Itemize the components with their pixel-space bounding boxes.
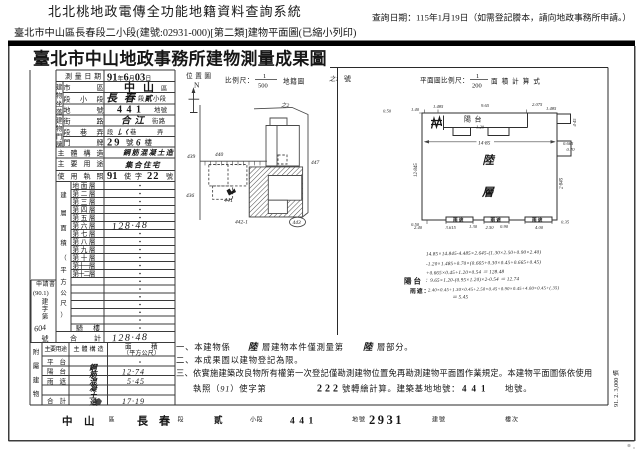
svg-text:陽台: 陽台 bbox=[464, 115, 485, 124]
svg-text:441: 441 bbox=[117, 105, 146, 116]
svg-text:第十二層: 第十二層 bbox=[73, 269, 96, 278]
svg-text:巷: 巷 bbox=[130, 128, 137, 136]
svg-text:北北桃地政電傳全功能地籍資料查詢系統: 北北桃地政電傳全功能地籍資料查詢系統 bbox=[48, 4, 302, 19]
svg-text:建: 建 bbox=[60, 190, 67, 199]
svg-text:段: 段 bbox=[97, 94, 104, 103]
svg-text:第: 第 bbox=[42, 312, 49, 321]
svg-text:之2: 之2 bbox=[281, 102, 290, 109]
svg-text:(90.1): (90.1) bbox=[33, 290, 49, 297]
svg-text:0.90: 0.90 bbox=[500, 224, 509, 229]
svg-text:樓: 樓 bbox=[145, 137, 153, 147]
svg-text:號: 號 bbox=[344, 74, 351, 83]
svg-text:貳: 貳 bbox=[214, 415, 223, 425]
svg-text:臺北市中山地政事務所建物測量成果圖: 臺北市中山地政事務所建物測量成果圖 bbox=[33, 49, 327, 69]
svg-text:層: 層 bbox=[481, 186, 495, 199]
svg-text:牌: 牌 bbox=[56, 139, 63, 148]
svg-text:地籍圖: 地籍圖 bbox=[283, 76, 305, 85]
svg-text:平: 平 bbox=[47, 358, 54, 366]
svg-text:第二層: 第二層 bbox=[73, 189, 96, 198]
svg-text:主要用途: 主要用途 bbox=[45, 345, 68, 353]
svg-text:物: 物 bbox=[33, 389, 40, 398]
svg-text:2.50: 2.50 bbox=[486, 225, 495, 230]
svg-text:計: 計 bbox=[60, 396, 67, 405]
svg-text:91. 2. 3,000 張: 91. 2. 3,000 張 bbox=[613, 370, 620, 407]
svg-text:街: 街 bbox=[64, 117, 71, 126]
svg-text:第七層: 第七層 bbox=[73, 229, 96, 238]
svg-text:陸: 陸 bbox=[483, 154, 496, 167]
svg-text:雨遮: 雨遮 bbox=[453, 216, 465, 223]
svg-text:14.85×14.845-4.485×2.645-(1.30: 14.85×14.845-4.485×2.645-(1.30×2.50+0.90… bbox=[426, 250, 541, 257]
svg-text:公: 公 bbox=[60, 290, 67, 297]
svg-text:號: 號 bbox=[97, 106, 104, 115]
svg-text:物: 物 bbox=[56, 91, 62, 100]
svg-text:一、本建物係陸層建物本件僅測量第陸層部分。: 一、本建物係陸層建物本件僅測量第陸層部分。 bbox=[176, 341, 413, 353]
svg-text:604: 604 bbox=[34, 323, 47, 334]
svg-text:建: 建 bbox=[33, 375, 40, 384]
svg-text:字: 字 bbox=[42, 304, 49, 313]
svg-text:9.65: 9.65 bbox=[481, 103, 490, 108]
svg-text:（平方公尺）: （平方公尺） bbox=[123, 349, 160, 357]
svg-text:合: 合 bbox=[70, 334, 77, 343]
svg-text:三、依實施建築改良物所有權第一次登記僅勘測建物位置免再勘測建: 三、依實施建築改良物所有權第一次登記僅勘測建物位置免再勘測建物平面圖作業規定。本… bbox=[176, 368, 593, 378]
svg-text:建: 建 bbox=[42, 297, 49, 306]
svg-text:第四層: 第四層 bbox=[73, 205, 96, 214]
svg-text:小段: 小段 bbox=[153, 93, 167, 102]
svg-text:2.075: 2.075 bbox=[532, 102, 543, 107]
svg-text:200: 200 bbox=[472, 82, 482, 89]
svg-text:雨遮：: 雨遮： bbox=[410, 287, 430, 295]
svg-text:區: 區 bbox=[97, 84, 104, 92]
svg-text:小: 小 bbox=[80, 94, 87, 103]
svg-text:平面圖比例尺：: 平面圖比例尺： bbox=[420, 76, 469, 85]
svg-text:合: 合 bbox=[47, 396, 54, 405]
svg-text:區: 區 bbox=[161, 84, 167, 92]
svg-text:弄: 弄 bbox=[97, 128, 104, 136]
svg-text:1: 1 bbox=[263, 73, 266, 80]
svg-text:12·845: 12·845 bbox=[414, 163, 419, 177]
svg-text:第三層: 第三層 bbox=[73, 197, 96, 206]
svg-text:物: 物 bbox=[56, 124, 62, 133]
svg-text:2931: 2931 bbox=[369, 413, 404, 427]
svg-text:22: 22 bbox=[147, 171, 160, 182]
svg-text:屬: 屬 bbox=[33, 362, 40, 370]
svg-text:號: 號 bbox=[126, 137, 134, 147]
svg-text:5·45: 5·45 bbox=[127, 377, 145, 386]
svg-text:執照（91）使字第222號轉繪計算。建築基地地號：441地號: 執照（91）使字第222號轉繪計算。建築基地地號：441地號。 bbox=[193, 383, 532, 394]
svg-text:29: 29 bbox=[107, 138, 122, 149]
svg-text:主體構造: 主體構造 bbox=[58, 148, 104, 157]
svg-text:4·45: 4·45 bbox=[572, 118, 577, 127]
svg-text:中山: 中山 bbox=[62, 415, 106, 428]
svg-text:447: 447 bbox=[311, 159, 320, 166]
svg-text:128·48: 128·48 bbox=[112, 332, 149, 344]
svg-text:小段: 小段 bbox=[250, 416, 263, 424]
svg-text:-1.20×1.485+0.70×(0.665+0.30×0: -1.20×1.485+0.70×(0.665+0.30×0.45+0.665+… bbox=[426, 260, 541, 267]
svg-text:集合住宅: 集合住宅 bbox=[124, 161, 161, 170]
svg-text:441: 441 bbox=[224, 197, 233, 204]
svg-text:騎: 騎 bbox=[76, 324, 83, 333]
svg-text:地面層: 地面層 bbox=[73, 181, 96, 190]
svg-text:第八層: 第八層 bbox=[73, 237, 96, 246]
svg-text:二、本成果圖以建物登記為限。: 二、本成果圖以建物登記為限。 bbox=[176, 355, 303, 365]
svg-text:+0.665×0.45+1.20×0.54 ＝ 128.48: +0.665×0.45+1.20×0.54 ＝ 128.48 bbox=[426, 270, 505, 276]
svg-text:台: 台 bbox=[60, 367, 67, 376]
svg-text:雨遮: 雨遮 bbox=[491, 216, 503, 223]
svg-text:台: 台 bbox=[60, 357, 67, 366]
svg-text:6: 6 bbox=[136, 138, 141, 148]
svg-text:段: 段 bbox=[64, 94, 71, 103]
svg-text:1.20: 1.20 bbox=[476, 125, 485, 130]
svg-text:鋼筋混凝土造: 鋼筋混凝土造 bbox=[123, 148, 174, 157]
svg-text:𠄌𡿨: 𠄌𡿨 bbox=[116, 129, 130, 137]
svg-text:雨遮: 雨遮 bbox=[532, 216, 544, 223]
svg-text:面: 面 bbox=[60, 224, 66, 232]
svg-text:N: N bbox=[194, 81, 200, 90]
svg-text:500: 500 bbox=[258, 82, 268, 89]
svg-text:地號: 地號 bbox=[154, 105, 168, 114]
svg-text:0.35: 0.35 bbox=[561, 220, 570, 225]
svg-text:附: 附 bbox=[33, 347, 40, 356]
svg-text:段: 段 bbox=[178, 416, 184, 424]
svg-text:陽: 陽 bbox=[47, 367, 54, 376]
svg-text:查詢日期：115年1月19日（如需登記謄本，請向地政事務所申: 查詢日期：115年1月19日（如需登記謄本，請向地政事務所申請。） bbox=[372, 12, 631, 23]
svg-text:門: 門 bbox=[56, 133, 62, 141]
svg-text:號: 號 bbox=[42, 334, 49, 343]
svg-text:第十層: 第十層 bbox=[73, 253, 96, 262]
svg-text:層: 層 bbox=[60, 209, 66, 217]
svg-text:使用執照: 使用執照 bbox=[58, 171, 104, 180]
svg-text:1: 1 bbox=[476, 73, 479, 80]
svg-text:2·845: 2·845 bbox=[560, 177, 565, 189]
svg-text:1.30: 1.30 bbox=[469, 224, 478, 229]
svg-text:（: （ bbox=[60, 255, 66, 262]
svg-text:合江: 合江 bbox=[121, 114, 148, 126]
svg-text:主要用途: 主要用途 bbox=[58, 159, 104, 168]
svg-text:4.00: 4.00 bbox=[535, 225, 544, 230]
svg-text:落: 落 bbox=[56, 107, 63, 116]
svg-text:建: 建 bbox=[56, 116, 63, 125]
svg-text:17·19: 17·19 bbox=[122, 397, 145, 406]
svg-text:1.485: 1.485 bbox=[433, 104, 444, 109]
svg-text:441: 441 bbox=[290, 417, 318, 427]
svg-text:陽台: 陽台 bbox=[404, 276, 423, 286]
svg-text:臺北市中山區長春段二小段(建號:02931-000)[第二類: 臺北市中山區長春段二小段(建號:02931-000)[第二類]建物平面圖(已縮小… bbox=[14, 26, 356, 39]
svg-text:弄: 弄 bbox=[157, 128, 163, 136]
svg-text:建: 建 bbox=[56, 82, 63, 91]
svg-text:巷: 巷 bbox=[80, 128, 87, 136]
svg-text:貳: 貳 bbox=[144, 94, 154, 103]
svg-text:0.50: 0.50 bbox=[411, 222, 420, 227]
svg-text:積: 積 bbox=[151, 342, 158, 351]
svg-text:443: 443 bbox=[293, 219, 302, 226]
svg-text:3.615: 3.615 bbox=[446, 225, 457, 230]
svg-text:之1: 之1 bbox=[329, 75, 339, 83]
svg-text:樓: 樓 bbox=[93, 324, 100, 333]
svg-text:方: 方 bbox=[60, 277, 66, 286]
svg-text:436: 436 bbox=[186, 192, 195, 199]
svg-text:442-1: 442-1 bbox=[235, 219, 248, 226]
svg-text:面: 面 bbox=[125, 343, 132, 351]
svg-text:2.40×0.45+1.30×0.45+2.50×0.45+: 2.40×0.45+1.30×0.45+2.50×0.45+0.90×0.45+… bbox=[428, 285, 560, 292]
svg-text:0.50: 0.50 bbox=[383, 109, 392, 114]
svg-text:雨: 雨 bbox=[47, 377, 54, 385]
svg-text:14·85: 14·85 bbox=[478, 140, 491, 147]
svg-text:申請書: 申請書 bbox=[36, 280, 56, 288]
svg-text:建號: 建號 bbox=[432, 416, 446, 424]
svg-text:第十一層: 第十一層 bbox=[73, 261, 96, 270]
svg-text:尺: 尺 bbox=[60, 299, 67, 307]
svg-text:）: ） bbox=[60, 312, 66, 319]
svg-text:439: 439 bbox=[187, 153, 196, 160]
svg-text:使字: 使字 bbox=[124, 171, 146, 180]
svg-text:比例尺：: 比例尺： bbox=[225, 76, 254, 85]
svg-text:牌: 牌 bbox=[97, 138, 104, 147]
svg-text:樓次: 樓次 bbox=[505, 416, 519, 424]
svg-text:測量日期: 測量日期 bbox=[65, 72, 101, 81]
svg-text:積: 積 bbox=[60, 238, 67, 247]
svg-text:主體構造: 主體構造 bbox=[74, 345, 104, 353]
svg-text:440: 440 bbox=[215, 151, 224, 158]
svg-text:市: 市 bbox=[64, 83, 71, 92]
svg-text:面積計算式: 面積計算式 bbox=[491, 76, 544, 85]
svg-text:91: 91 bbox=[107, 171, 118, 182]
svg-text:長春: 長春 bbox=[106, 92, 142, 105]
svg-text:坐: 坐 bbox=[56, 99, 62, 108]
svg-text:位置圖: 位置圖 bbox=[186, 71, 214, 80]
svg-text:平: 平 bbox=[60, 266, 66, 274]
svg-text:門: 門 bbox=[64, 139, 71, 147]
svg-text:第五層: 第五層 bbox=[73, 213, 96, 222]
svg-text:遮: 遮 bbox=[60, 376, 67, 385]
svg-text:＝ 5.45: ＝ 5.45 bbox=[452, 296, 469, 301]
svg-text:街路: 街路 bbox=[152, 116, 166, 125]
svg-text:路: 路 bbox=[97, 117, 104, 126]
svg-text:1.485: 1.485 bbox=[546, 106, 557, 111]
svg-text:地號: 地號 bbox=[352, 416, 366, 424]
svg-text:段: 段 bbox=[107, 127, 114, 136]
svg-text:1.40: 1.40 bbox=[411, 107, 420, 112]
svg-text:0.665: 0.665 bbox=[563, 141, 574, 146]
svg-text:第六層: 第六層 bbox=[73, 221, 96, 230]
svg-text:長春: 長春 bbox=[137, 414, 181, 428]
svg-text:號: 號 bbox=[166, 171, 173, 180]
svg-text:地: 地 bbox=[64, 106, 71, 115]
svg-text:12·74: 12·74 bbox=[122, 367, 145, 376]
svg-text:128·48: 128·48 bbox=[112, 220, 149, 233]
svg-text:段: 段 bbox=[64, 127, 71, 136]
svg-text:：9.65×1.20-(0.95×1.20)×2-0.54: ：9.65×1.20-(0.95×1.20)×2-0.54 ＝ 12.74 bbox=[425, 276, 520, 284]
svg-text:第九層: 第九層 bbox=[73, 245, 96, 254]
svg-text:區: 區 bbox=[109, 417, 115, 424]
svg-text:計: 計 bbox=[94, 334, 101, 343]
svg-text:0.70: 0.70 bbox=[567, 147, 576, 152]
